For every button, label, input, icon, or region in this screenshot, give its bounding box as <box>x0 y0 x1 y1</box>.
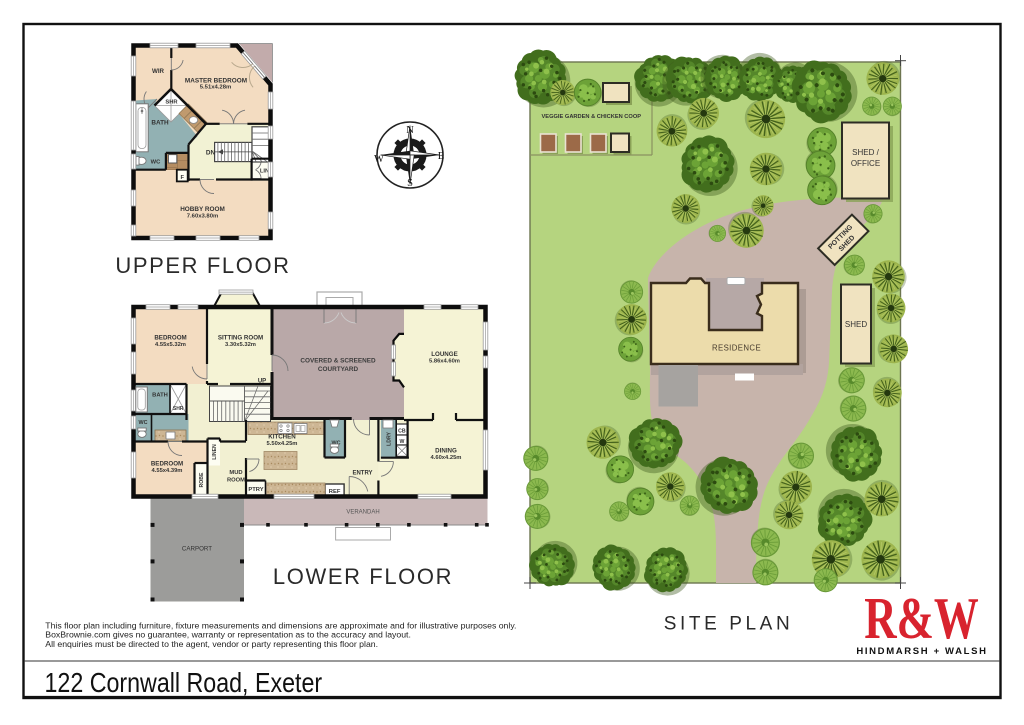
svg-text:DINING: DINING <box>435 448 457 455</box>
svg-text:E: E <box>438 151 444 162</box>
svg-text:LDRY: LDRY <box>387 432 393 446</box>
svg-text:WIR: WIR <box>152 68 165 75</box>
svg-text:WC: WC <box>151 160 161 166</box>
svg-text:ROBE: ROBE <box>199 472 205 488</box>
svg-text:R&W: R&W <box>864 586 979 651</box>
svg-text:5.86x4.60m: 5.86x4.60m <box>429 359 460 365</box>
svg-text:CARPORT: CARPORT <box>182 546 212 553</box>
svg-text:3.30x5.32m: 3.30x5.32m <box>225 342 256 348</box>
svg-text:WC: WC <box>139 420 148 426</box>
svg-text:RESIDENCE: RESIDENCE <box>712 344 761 353</box>
svg-text:LINEN: LINEN <box>212 444 218 460</box>
svg-text:W: W <box>374 154 384 165</box>
svg-text:KITCHEN: KITCHEN <box>268 434 296 441</box>
svg-text:PTRY: PTRY <box>248 487 263 493</box>
svg-text:LOWER FLOOR: LOWER FLOOR <box>273 564 453 589</box>
svg-text:UPPER FLOOR: UPPER FLOOR <box>115 253 290 278</box>
svg-text:BATH: BATH <box>151 120 169 127</box>
svg-text:SITE PLAN: SITE PLAN <box>664 614 794 635</box>
svg-text:BATH: BATH <box>152 393 168 399</box>
svg-text:SHR: SHR <box>173 406 184 412</box>
svg-text:MASTER BEDROOM: MASTER BEDROOM <box>185 78 247 85</box>
svg-text:VEGGIE GARDEN & CHICKEN COOP: VEGGIE GARDEN & CHICKEN COOP <box>542 114 642 120</box>
svg-text:ROOM: ROOM <box>227 478 245 484</box>
svg-text:OFFICE: OFFICE <box>851 159 880 168</box>
svg-text:5.51x4.28m: 5.51x4.28m <box>200 85 231 91</box>
svg-text:SHR: SHR <box>165 100 178 106</box>
svg-text:DN: DN <box>206 150 216 157</box>
svg-text:N: N <box>406 125 414 136</box>
svg-text:BEDROOM: BEDROOM <box>151 461 183 468</box>
svg-text:VERANDAH: VERANDAH <box>346 510 379 516</box>
svg-text:SHED: SHED <box>845 320 867 329</box>
svg-text:REF: REF <box>329 489 341 495</box>
svg-text:HINDMARSH + WALSH: HINDMARSH + WALSH <box>856 646 987 657</box>
svg-text:LIN: LIN <box>260 169 269 175</box>
svg-text:COVERED & SCREENED: COVERED & SCREENED <box>300 358 376 365</box>
svg-text:4.55x4.39m: 4.55x4.39m <box>152 468 183 474</box>
svg-text:CB: CB <box>398 429 406 435</box>
svg-text:MUD: MUD <box>229 470 242 476</box>
svg-text:SHED /: SHED / <box>852 148 879 157</box>
svg-text:4.60x4.25m: 4.60x4.25m <box>431 455 462 461</box>
svg-text:S: S <box>407 178 413 189</box>
svg-text:BEDROOM: BEDROOM <box>154 335 186 342</box>
svg-text:LOUNGE: LOUNGE <box>431 351 457 358</box>
svg-text:All enquiries must be directed: All enquiries must be directed to the ag… <box>45 639 378 649</box>
svg-text:122 Cornwall Road, Exeter: 122 Cornwall Road, Exeter <box>44 668 322 698</box>
svg-text:7.60x3.80m: 7.60x3.80m <box>187 213 218 219</box>
svg-text:5.50x4.25m: 5.50x4.25m <box>267 441 298 447</box>
svg-text:ENTRY: ENTRY <box>352 471 372 477</box>
svg-text:HOBBY ROOM: HOBBY ROOM <box>180 206 225 213</box>
svg-text:SITTING ROOM: SITTING ROOM <box>218 335 263 342</box>
svg-text:COURTYARD: COURTYARD <box>318 366 359 373</box>
svg-text:4.55x5.32m: 4.55x5.32m <box>155 342 186 348</box>
svg-text:F: F <box>181 175 185 181</box>
svg-text:W: W <box>399 439 404 445</box>
